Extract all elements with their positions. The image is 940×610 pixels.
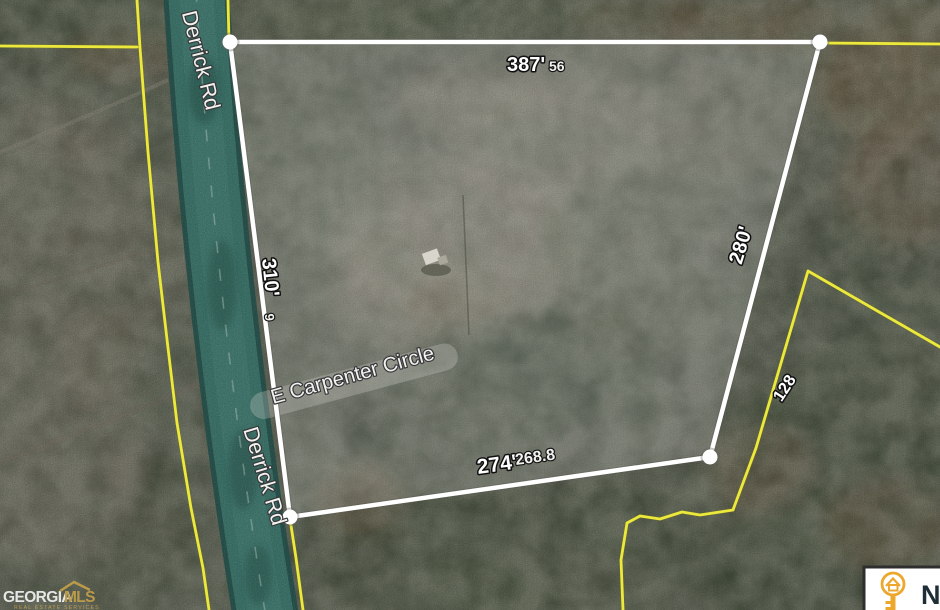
watermark-tagline: REAL ESTATE SERVICES bbox=[14, 605, 100, 610]
dimension-left: 310' bbox=[257, 257, 283, 297]
map-canvas: Derrick Rd Derrick Rd E Carpenter Circle… bbox=[0, 0, 940, 610]
vertex-dot-se bbox=[703, 450, 718, 465]
aerial-parcel-map: Derrick Rd Derrick Rd E Carpenter Circle… bbox=[0, 0, 940, 610]
watermark-mls: MLS bbox=[64, 589, 95, 606]
watermark-georgia: GEORGIA bbox=[3, 589, 72, 606]
boundary-line-west-spur bbox=[0, 46, 137, 47]
vertex-dot-nw bbox=[223, 35, 238, 50]
dimension-top: 387' bbox=[507, 54, 545, 76]
brand-badge: N bbox=[864, 567, 940, 610]
boundary-line-right-spur bbox=[821, 43, 940, 44]
dimension-top-alt: 56 bbox=[549, 58, 565, 74]
badge-letter: N bbox=[921, 580, 940, 610]
vertex-dot-ne bbox=[813, 35, 828, 50]
